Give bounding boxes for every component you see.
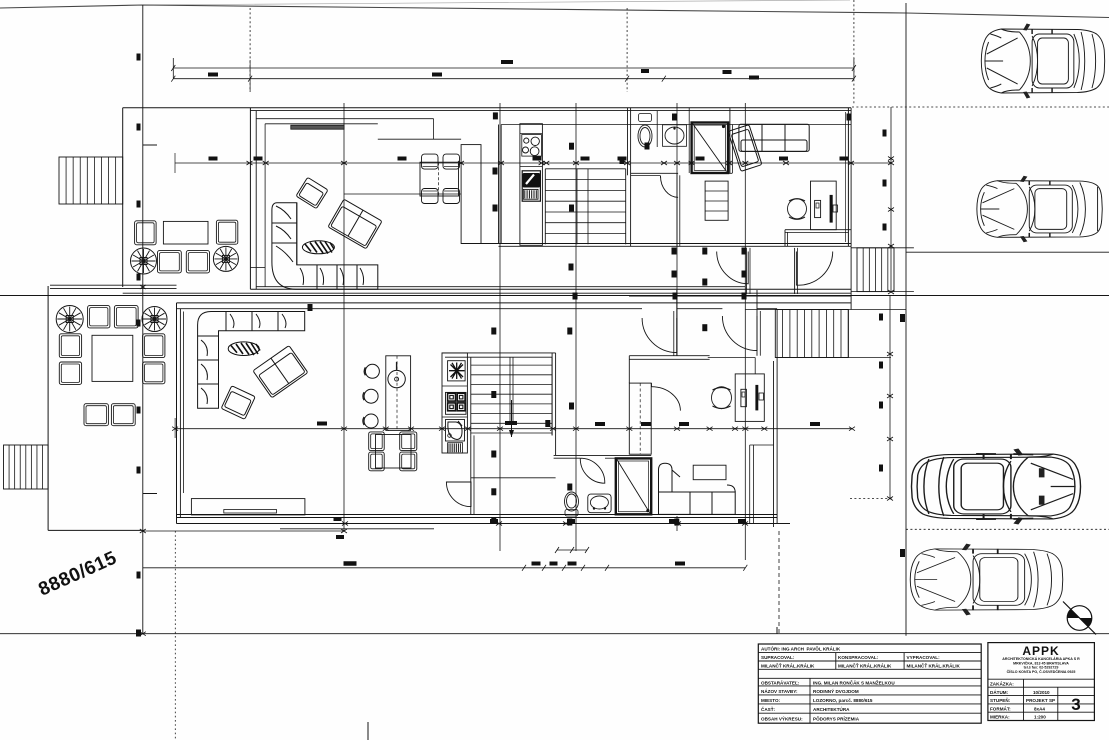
svg-text:MILANČŤ KRÁL.KRÁLIK: MILANČŤ KRÁL.KRÁLIK [838,661,892,668]
svg-text:ING. MILAN RONČÁK S MANŽELKOU: ING. MILAN RONČÁK S MANŽELKOU [813,678,895,685]
svg-text:AUTÓRI: ING ARCH PAVÔL KRÁLIK: AUTÓRI: ING ARCH PAVÔL KRÁLIK [761,645,841,652]
svg-text:MILANČŤ KRÁL.KRÁLIK: MILANČŤ KRÁL.KRÁLIK [761,661,815,668]
svg-text:3: 3 [1071,695,1080,714]
svg-text:MILANČŤ KRÁL.KRÁLIK: MILANČŤ KRÁL.KRÁLIK [907,661,961,668]
svg-text:VYPRACOVAL:: VYPRACOVAL: [907,655,941,660]
svg-text:MIERKA:: MIERKA: [990,715,1010,720]
svg-text:1:200: 1:200 [1034,715,1046,720]
svg-text:8xA4: 8xA4 [1034,706,1045,711]
svg-text:MRKVIČKA, 813 45 BRATISLAVA: MRKVIČKA, 813 45 BRATISLAVA [1013,660,1069,665]
svg-text:LOZORNO, parcč. 8880/615: LOZORNO, parcč. 8880/615 [813,698,873,703]
svg-text:PROJEKT SP: PROJEKT SP [1026,698,1055,703]
svg-text:KONSPRACOVAL:: KONSPRACOVAL: [838,655,879,660]
svg-text:ARCHITEKTÚRA: ARCHITEKTÚRA [813,706,850,712]
svg-text:OBSAH VÝKRESU:: OBSAH VÝKRESU: [761,716,803,722]
svg-text:ARCHITEKTONICKÁ KANCELÁRIA APK: ARCHITEKTONICKÁ KANCELÁRIA APKA S R [1002,656,1080,661]
svg-text:APPK: APPK [1022,644,1059,658]
svg-text:10/2010: 10/2010 [1033,690,1050,695]
svg-text:OBSTARÁVATEĽ:: OBSTARÁVATEĽ: [761,679,800,685]
svg-text:ČASŤ:: ČASŤ: [761,705,776,712]
svg-text:SUPRACOVAL:: SUPRACOVAL: [761,655,795,660]
svg-text:DÁTUM:: DÁTUM: [990,689,1009,695]
svg-text:ČÍSLO KONTA PO, Č.OSVEDČENIA 0: ČÍSLO KONTA PO, Č.OSVEDČENIA 0925 [1007,669,1076,674]
svg-text:PÔDORYS PRÍZEMIA: PÔDORYS PRÍZEMIA [813,715,860,722]
svg-text:STUPEŇ:: STUPEŇ: [990,696,1011,703]
svg-text:RODINNÝ DVOJDOM: RODINNÝ DVOJDOM [813,688,859,694]
svg-text:FORMÁT:: FORMÁT: [990,705,1011,711]
svg-text:NÁZOV STAVBY:: NÁZOV STAVBY: [761,688,798,694]
svg-text:ZAKÁZKA:: ZAKÁZKA: [990,681,1014,687]
svg-text:MIESTO:: MIESTO: [761,698,781,703]
